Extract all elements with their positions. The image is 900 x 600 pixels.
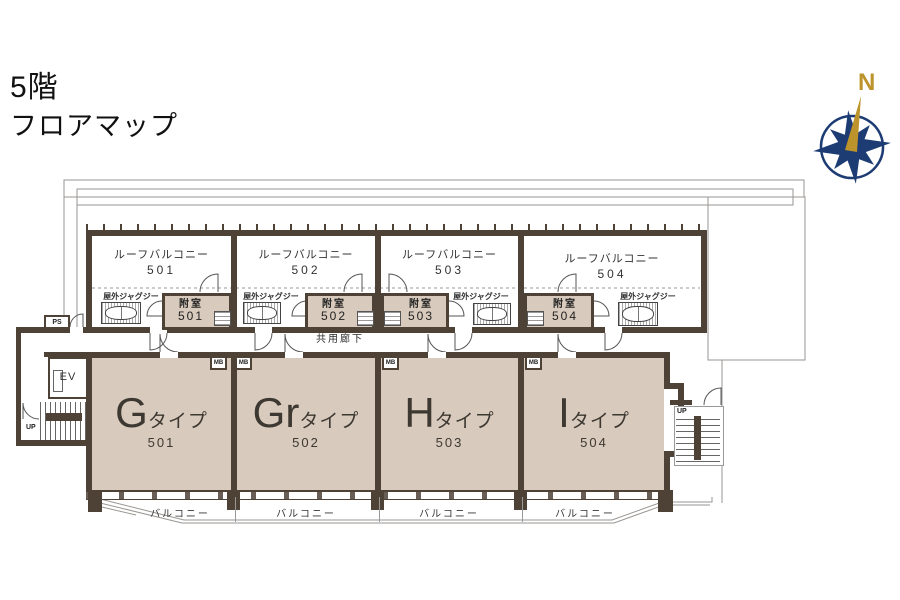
stairs-left-up-label: UP — [26, 424, 36, 431]
mb-label: MB — [239, 360, 248, 366]
wall — [701, 230, 707, 333]
unit-type-word: タイプ — [299, 406, 359, 433]
door-arc — [428, 334, 446, 352]
door-opening — [160, 352, 178, 358]
door-opening — [428, 352, 446, 358]
unit-label-504: Iタイプ 504 — [524, 390, 664, 448]
door-opening — [605, 327, 622, 333]
roof-area-right — [708, 197, 805, 360]
roof-balcony-502: ルーフバルコニー 502 — [237, 246, 375, 277]
unit-type-letter: G — [115, 389, 148, 437]
door-arc — [605, 333, 622, 350]
roof-balcony-number: 503 — [381, 263, 518, 277]
door-arc — [594, 301, 609, 316]
door-arc — [255, 333, 272, 350]
stairs-left-handrail — [46, 413, 82, 421]
door-arc — [455, 333, 472, 350]
unit-type-letter: I — [558, 389, 570, 437]
annex-number: 501 — [178, 310, 204, 323]
jacuzzi-tub-icon — [101, 302, 141, 324]
balcony-divider — [379, 497, 380, 522]
door-arc — [150, 333, 167, 350]
mb-label: MB — [214, 360, 223, 366]
door-arc — [558, 334, 576, 352]
balcony-divider — [522, 497, 523, 522]
jacuzzi-label-504: 屋外ジャグジー — [612, 291, 684, 302]
mb-label: MB — [529, 360, 538, 366]
wall — [86, 230, 707, 236]
annex-storage-box — [384, 311, 401, 326]
stairs-left — [40, 402, 86, 440]
balcony-wall-stub — [371, 490, 384, 510]
unit-number: 502 — [292, 435, 320, 450]
ps-box: PS — [44, 315, 70, 329]
balcony-label-503: バルコニー — [390, 505, 508, 520]
wall — [16, 440, 92, 446]
unit-type-word: タイプ — [435, 406, 495, 433]
annex-number: 503 — [408, 310, 434, 323]
door-opening — [285, 352, 303, 358]
mb-label: MB — [386, 360, 395, 366]
balcony-wall-stub — [658, 490, 673, 512]
jacuzzi-label-503: 屋外ジャグジー — [445, 291, 517, 302]
mb-box: MB — [235, 356, 252, 370]
unit-type-word: タイプ — [148, 406, 208, 433]
balcony-label-504: バルコニー — [525, 505, 645, 520]
balcony-label-502: バルコニー — [246, 505, 366, 520]
wall — [670, 400, 692, 405]
unit-type-letter: Gr — [253, 389, 300, 437]
door-opening — [455, 327, 472, 333]
roof-balcony-name: ルーフバルコニー — [381, 246, 518, 262]
wall — [16, 327, 21, 446]
mb-box: MB — [210, 356, 227, 370]
door-arc — [23, 403, 39, 419]
roof-balcony-number: 504 — [524, 267, 700, 281]
unit-type-letter: H — [404, 389, 434, 437]
annex-number: 504 — [552, 310, 578, 323]
roof-balcony-name: ルーフバルコニー — [237, 246, 375, 262]
roof-balcony-name: ルーフバルコニー — [92, 246, 231, 262]
ev-label: EV — [50, 371, 86, 383]
door-opening — [255, 327, 272, 333]
unit-type-word: タイプ — [570, 406, 630, 433]
door-opening — [70, 327, 83, 333]
jacuzzi-tub-icon — [618, 302, 658, 326]
annex-storage-box — [527, 311, 544, 326]
jacuzzi-label-501: 屋外ジャグジー — [96, 291, 166, 302]
roof-balcony-501: ルーフバルコニー 501 — [92, 246, 231, 277]
corridor-label: 共用廊下 — [300, 334, 380, 346]
stairs-right-handrail — [694, 416, 701, 460]
unit-label-503: Hタイプ 503 — [381, 390, 518, 448]
door-arc — [704, 388, 721, 405]
door-arc — [449, 301, 464, 316]
jacuzzi-tub-icon — [473, 303, 511, 325]
annex-storage-box — [214, 311, 231, 326]
unit-label-502: Grタイプ 502 — [237, 390, 375, 448]
annex-storage-box — [357, 311, 374, 326]
balcony-wall-stub — [88, 490, 102, 512]
roof-balcony-number: 501 — [92, 263, 231, 277]
mb-box: MB — [382, 356, 399, 370]
jacuzzi-label-502: 屋外ジャグジー — [238, 291, 304, 302]
unit-number: 503 — [436, 435, 464, 450]
door-arc — [147, 301, 162, 316]
unit-label-501: Gタイプ 501 — [92, 390, 231, 448]
page: 5階 フロアマップ N — [0, 0, 900, 600]
ev-room: EV — [48, 357, 88, 399]
door-arc — [160, 334, 178, 352]
roof-balcony-504: ルーフバルコニー 504 — [524, 250, 700, 281]
roof-balcony-name: ルーフバルコニー — [524, 250, 700, 266]
roof-balcony-503: ルーフバルコニー 503 — [381, 246, 518, 277]
mb-box: MB — [525, 356, 542, 370]
annex-number: 502 — [321, 310, 347, 323]
unit-number: 504 — [580, 435, 608, 450]
ps-label: PS — [52, 319, 61, 326]
roof-balcony-number: 502 — [237, 263, 375, 277]
unit-number: 501 — [148, 435, 176, 450]
stairs-right-up-label: UP — [677, 408, 687, 415]
jacuzzi-tub-icon — [243, 302, 281, 324]
balcony-label-501: バルコニー — [120, 505, 240, 520]
door-opening — [558, 352, 576, 358]
